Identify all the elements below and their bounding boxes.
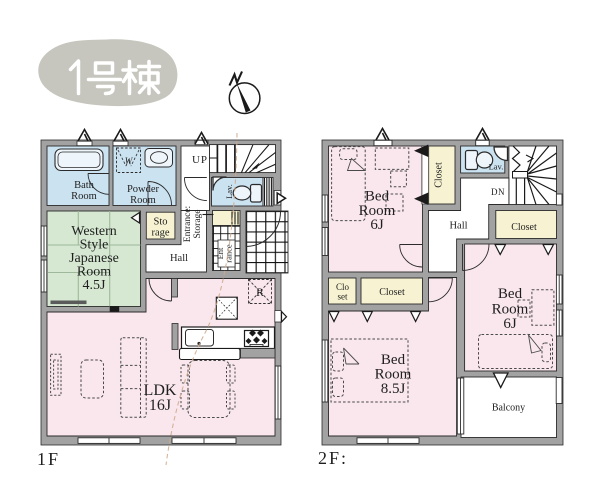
svg-text:Balcony: Balcony (492, 403, 525, 414)
svg-text:16J: 16J (149, 397, 171, 414)
svg-text:4.5J: 4.5J (83, 278, 107, 293)
svg-text:Closet: Closet (511, 222, 537, 233)
svg-text:Sto: Sto (153, 217, 167, 228)
svg-text:Bed: Bed (498, 286, 523, 302)
svg-text:rage: rage (151, 228, 169, 239)
svg-text:Storage: Storage (193, 209, 203, 238)
svg-text:6J: 6J (370, 217, 384, 233)
svg-text:Powder: Powder (127, 184, 160, 195)
svg-text:Lav.: Lav. (489, 162, 504, 172)
svg-text:Bath: Bath (74, 180, 95, 191)
svg-text:Closet: Closet (379, 287, 405, 298)
svg-text:Storage: Storage (220, 311, 234, 316)
svg-text:1F: 1F (37, 449, 60, 469)
svg-text:6J: 6J (503, 316, 517, 332)
svg-text:8.5J: 8.5J (381, 381, 406, 397)
svg-text:R: R (256, 287, 264, 299)
svg-text:Hall: Hall (449, 221, 467, 232)
svg-text:Room: Room (71, 191, 97, 202)
svg-text:rance: rance (224, 244, 234, 263)
svg-text:DN: DN (491, 187, 505, 197)
svg-text:Hall: Hall (170, 253, 188, 264)
svg-text:Clo: Clo (336, 282, 350, 292)
svg-text:2F:: 2F: (318, 448, 348, 468)
svg-text:Closet: Closet (434, 162, 445, 188)
svg-text:set: set (338, 292, 348, 302)
svg-text:Entrance:: Entrance: (183, 206, 193, 242)
svg-text:Room: Room (130, 195, 156, 206)
svg-text:Lav.: Lav. (224, 184, 234, 199)
svg-text:UP: UP (192, 154, 208, 166)
